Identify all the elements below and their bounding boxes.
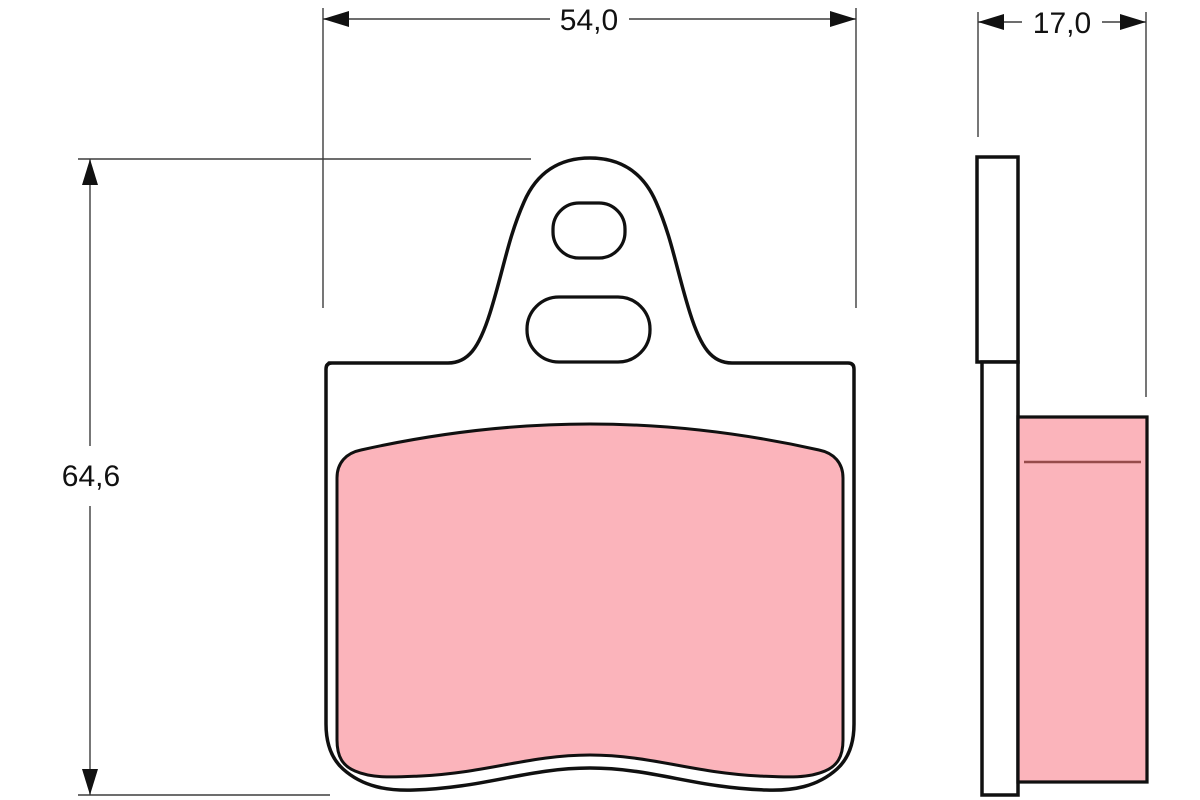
friction-material-side: [1018, 417, 1147, 782]
brake-pad-technical-drawing: 54,0 17,0 64,6: [0, 0, 1200, 800]
front-view: [326, 158, 854, 790]
thickness-arrow-left: [978, 14, 1004, 30]
friction-material-front: [337, 424, 843, 777]
width-arrow-left: [323, 11, 349, 27]
drawing-page: 54,0 17,0 64,6: [0, 0, 1200, 800]
thickness-dimension-label: 17,0: [1033, 7, 1091, 40]
side-view: [977, 157, 1147, 795]
tab-hole-top: [553, 203, 625, 258]
height-arrow-up: [82, 159, 98, 185]
backplate-side-tab: [977, 157, 1018, 362]
tab-hole-bottom: [527, 297, 650, 362]
height-dimension-label: 64,6: [62, 460, 120, 493]
height-arrow-down: [82, 769, 98, 795]
backplate-side-body: [982, 362, 1018, 795]
width-dimension-label: 54,0: [560, 4, 618, 37]
width-arrow-right: [830, 11, 856, 27]
thickness-arrow-right: [1120, 14, 1146, 30]
